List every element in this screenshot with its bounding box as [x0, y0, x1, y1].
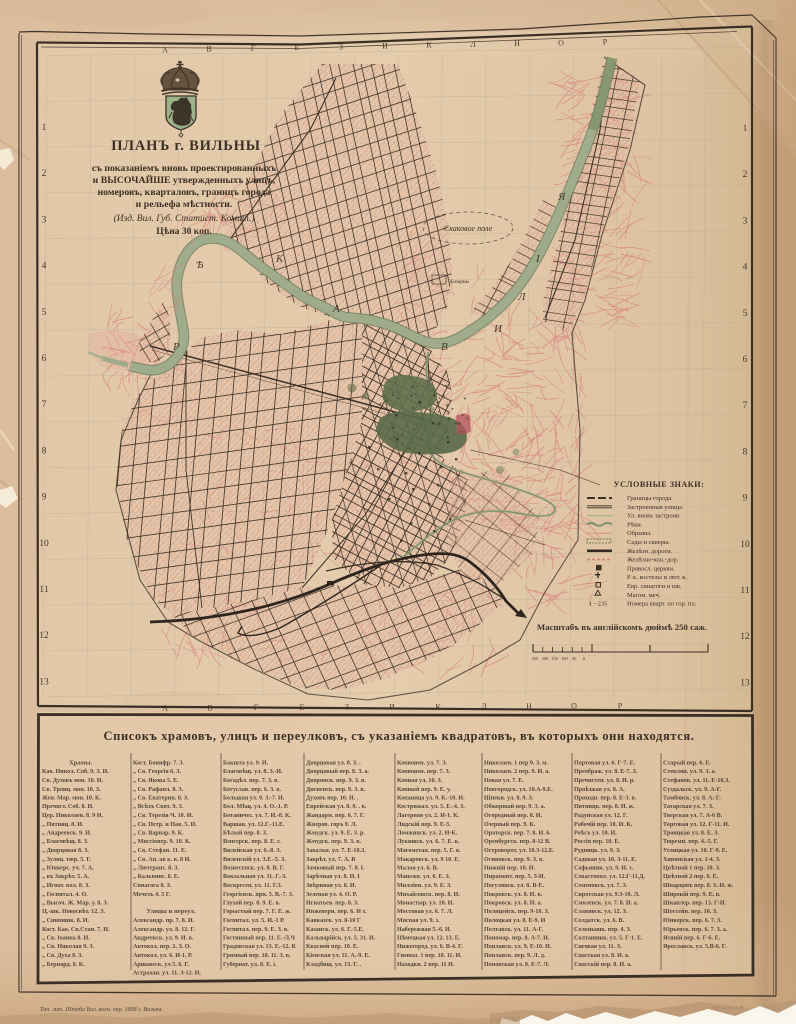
svg-text:Ул. вновь застроив.: Ул. вновь застроив.	[627, 513, 681, 520]
svg-text:Кост. Бонифр. 7. З.: Кост. Бонифр. 7. З.	[133, 760, 185, 767]
svg-text:Большая ул. 9. З.-7. И.: Большая ул. 9. З.-7. И.	[223, 796, 285, 802]
svg-text:10: 10	[740, 540, 750, 550]
svg-text:Поплавск. пер. 9. Л. д.: Поплавск. пер. 9. Л. д.	[484, 953, 546, 959]
svg-text:Благовѣщ. ул. 8. З.-И.: Благовѣщ. ул. 8. З.-И.	[223, 768, 283, 775]
svg-text:Суздальск. ул. 9. А-Г.: Суздальск. ул. 9. А-Г.	[663, 787, 722, 793]
svg-text:Садовая ул. 10. З-11. Е.: Садовая ул. 10. З-11. Е.	[574, 857, 637, 863]
svg-text:Преображ. ул. 8. Е-7. З.: Преображ. ул. 8. Е-7. З.	[574, 768, 638, 775]
svg-text:номеровъ, кварталовъ, границъ: номеровъ, кварталовъ, границъ города	[98, 187, 271, 198]
svg-text:1 - 235: 1 - 235	[589, 601, 607, 608]
svg-text:И: И	[389, 703, 395, 712]
svg-text:Пономар. пер. 8. А-7. И.: Пономар. пер. 8. А-7. И.	[484, 936, 550, 942]
svg-text:Сиговая ул. 11. З.: Сиговая ул. 11. З.	[574, 944, 622, 950]
svg-text:и ВЫСОЧАЙШЕ утвержденныхъ улиц: и ВЫСОЧАЙШЕ утвержденныхъ улицъ,	[93, 174, 276, 186]
svg-text:„ Св. Якова 5. Е.: „ Св. Якова 5. Е.	[133, 778, 179, 784]
svg-text:Стеклян. ул. 9. З. а.: Стеклян. ул. 9. З. а.	[663, 769, 717, 775]
svg-text:11: 11	[39, 585, 48, 595]
svg-text:Квасной пер. 10. Е.: Квасной пер. 10. Е.	[306, 943, 359, 950]
svg-text:Оренбургск. пер. 8-12 В.: Оренбургск. пер. 8-12 В.	[484, 838, 551, 845]
svg-text:„ Дворцовая 8. З.: „ Дворцовая 8. З.	[42, 848, 89, 854]
svg-text:Портовая ул. 6. Г-7. Е.: Портовая ул. 6. Г-7. Е.	[574, 761, 636, 767]
svg-text:Новая ул. 7. Е.: Новая ул. 7. Е.	[484, 778, 524, 784]
svg-text:ПЛАНЪ г. ВИЛЬНЫ: ПЛАНЪ г. ВИЛЬНЫ	[111, 138, 261, 154]
svg-text:Магом. меч.: Магом. меч.	[627, 592, 661, 599]
svg-text:съ показаніемъ вновь проектиро: съ показаніемъ вновь проектированныхъ	[92, 163, 277, 174]
svg-text:И: И	[382, 42, 388, 51]
svg-text:Славянск. ул. 12. З.: Славянск. ул. 12. З.	[574, 909, 628, 915]
svg-text:Тюремн. пер. 4.-5. Г.: Тюремн. пер. 4.-5. Г.	[663, 839, 719, 845]
svg-text:Ѣ: Ѣ	[196, 259, 204, 271]
svg-text:150: 150	[551, 656, 557, 661]
svg-text:Стефанов. ул. 11. Е-10.З.: Стефанов. ул. 11. Е-10.З.	[663, 777, 730, 784]
svg-text:Варшав. ул. 12.Г.-11.Е.: Варшав. ул. 12.Г.-11.Е.	[223, 822, 285, 828]
svg-text:Бол. Мѣщ. ул. 4. О.-1. Р.: Бол. Мѣщ. ул. 4. О.-1. Р.	[223, 803, 289, 810]
svg-text:Лагерная ул. 2. И-1. К.: Лагерная ул. 2. И-1. К.	[397, 813, 459, 819]
svg-text:Георгіевск. прп. 5. В.-7. З.: Георгіевск. прп. 5. В.-7. З.	[223, 892, 294, 898]
svg-text:Ораторск. пер. 7. 8. И. 6.: Ораторск. пер. 7. 8. И. 6.	[484, 831, 551, 837]
svg-text:Севастопол. ул. 12.Г-11.Д.: Севастопол. ул. 12.Г-11.Д.	[574, 874, 645, 880]
svg-text:Завальн. ул. 7. Е-10.З.: Завальн. ул. 7. Е-10.З.	[306, 848, 366, 854]
svg-text:Семеновск. ул. 7. З.: Семеновск. ул. 7. З.	[574, 883, 628, 889]
svg-text:Спасская ул. 8. И. а.: Спасская ул. 8. И. а.	[574, 953, 630, 959]
svg-text:1: 1	[743, 124, 748, 134]
svg-text:200: 200	[542, 656, 548, 661]
svg-text:Воскресен. ул. 11. Г.З.: Воскресен. ул. 11. Г.З.	[223, 883, 283, 889]
svg-text:Пятницк. пер. 8. И. ж.: Пятницк. пер. 8. И. ж.	[574, 804, 635, 810]
svg-text:Желѣзно-кон.-дор.: Желѣзно-кон.-дор.	[627, 557, 679, 564]
svg-text:Цѣна 30 коп.: Цѣна 30 коп.	[156, 226, 212, 237]
svg-text:И: И	[493, 323, 503, 335]
svg-text:Границы города.: Границы города.	[627, 495, 673, 502]
svg-text:Магометан. пер. 5. Г. в.: Магометан. пер. 5. Г. в.	[397, 848, 461, 854]
svg-text:Осиновск. пер. 9. З. в.: Осиновск. пер. 9. З. в.	[484, 857, 544, 863]
svg-text:Дворянск. пер. 9. З. в.: Дворянск. пер. 9. З. в.	[306, 778, 366, 784]
svg-text:„ Юнкерс. уч. 7. А.: „ Юнкерс. уч. 7. А.	[42, 866, 94, 872]
svg-text:Л: Л	[517, 291, 526, 303]
svg-text:„ Зулиц. тюр. 5. Г.: „ Зулиц. тюр. 5. Г.	[42, 857, 92, 863]
svg-text:Жмудск. ул. 9. Е. З. р.: Жмудск. ул. 9. Е. З. р.	[306, 831, 365, 837]
svg-text:Пречистен. ул. 8. И. р.: Пречистен. ул. 8. И. р.	[574, 778, 635, 784]
svg-text:Р: Р	[172, 341, 180, 353]
svg-text:Венгерск. пер. 8. Е. г.: Венгерск. пер. 8. Е. г.	[223, 839, 281, 845]
svg-text:Бакшта ул. 9. И.: Бакшта ул. 9. И.	[223, 761, 269, 767]
svg-text:„ Св. Николая 9. З.: „ Св. Николая 9. З.	[42, 944, 95, 950]
svg-text:9: 9	[42, 493, 47, 503]
svg-text:„ Андреевск. 9. И.: „ Андреевск. 9. И.	[42, 831, 92, 837]
svg-text:Смоленск. ул. 7. 8. И. а.: Смоленск. ул. 7. 8. И. а.	[574, 901, 639, 907]
svg-text:Тамбовск. ул. 8. А.-Г.: Тамбовск. ул. 8. А.-Г.	[663, 795, 721, 802]
svg-text:5: 5	[42, 308, 47, 318]
svg-text:Госпитал. пер. 9. Е. З. в.: Госпитал. пер. 9. Е. З. в.	[223, 927, 289, 933]
svg-text:Масштабъ въ англійскомъ дюймѣ: Масштабъ въ англійскомъ дюймѣ 250 саж.	[537, 622, 707, 632]
svg-text:Конная ул. 10. З.: Конная ул. 10. З.	[397, 778, 443, 784]
svg-text:Богадѣл. пер. 7. З. в.: Богадѣл. пер. 7. З. в.	[223, 777, 279, 784]
svg-text:9: 9	[743, 494, 748, 504]
svg-text:„ Госпитал. 4. О.: „ Госпитал. 4. О.	[42, 892, 88, 898]
svg-text:Аршавеск. ул 5. 6. Г.: Аршавеск. ул 5. 6. Г.	[133, 962, 190, 968]
svg-text:Обжорный пер. 9. З. а.: Обжорный пер. 9. З. а.	[484, 803, 546, 810]
svg-text:Дворцовая ул. 8. З. .: Дворцовая ул. 8. З. .	[306, 761, 361, 767]
svg-text:Р: Р	[603, 38, 608, 47]
svg-text:„ Св. Варвар. 9. К.: „ Св. Варвар. 9. К.	[133, 831, 184, 837]
svg-text:Андреевск. ул. 9. И. в.: Андреевск. ул. 9. И. в.	[133, 936, 194, 942]
svg-text:6: 6	[42, 354, 47, 364]
svg-text:Спасскій пер. 8. И. а.: Спасскій пер. 8. И. а.	[574, 961, 632, 968]
svg-text:„ Св. Іоанна 8. И.: „ Св. Іоанна 8. И.	[42, 936, 90, 942]
svg-text:„ Св. Екатерин. 8. З.: „ Св. Екатерин. 8. З.	[133, 796, 189, 802]
svg-text:Монастыр. ул. 10. И.: Монастыр. ул. 10. И.	[397, 901, 454, 907]
svg-text:„ Игнат. кол. 8. З.: „ Игнат. кол. 8. З.	[42, 883, 90, 889]
svg-text:Татарская ул. 7. З.: Татарская ул. 7. З.	[663, 804, 714, 810]
svg-text:Госпитал. ул. 5. И.-1 Р.: Госпитал. ул. 5. И.-1 Р.	[223, 918, 285, 924]
svg-text:Широкій пер. 9. Е. в.: Широкій пер. 9. Е. в.	[663, 891, 721, 898]
svg-text:Номера кварт. по гор. пл.: Номера кварт. по гор. пл.	[627, 601, 697, 608]
svg-text:Я: Я	[557, 191, 566, 203]
svg-text:1: 1	[42, 123, 47, 133]
svg-text:Александр. пр. 7. 8. И.: Александр. пр. 7. 8. И.	[133, 918, 195, 924]
svg-text:Кострижал. ул. 5. Е.-4. З.: Кострижал. ул. 5. Е.-4. З.	[397, 804, 465, 810]
svg-text:Богуслав. пер. 6. З. в.: Богуслав. пер. 6. З. в.	[223, 787, 282, 793]
svg-text:Списокъ храмовъ, улицъ и переу: Списокъ храмовъ, улицъ и переулковъ, съ …	[104, 729, 695, 743]
svg-text:„ Бернард. 8. К.: „ Бернард. 8. К.	[42, 962, 85, 968]
svg-text:Улицы и переул.: Улицы и переул.	[146, 908, 196, 915]
svg-text:100: 100	[561, 656, 567, 661]
svg-text:Жверов. горъ 9. Л.: Жверов. горъ 9. Л.	[306, 822, 357, 828]
svg-text:Скаковое поле: Скаковое поле	[444, 224, 493, 233]
svg-text:Кладбищ. ул. 13. Г. .: Кладбищ. ул. 13. Г. .	[306, 961, 361, 968]
svg-text:Шпеки. ул. 8. 9. З.: Шпеки. ул. 8. 9. З.	[484, 796, 534, 802]
svg-text:Конный пер. 9. Е. у.: Конный пер. 9. Е. у.	[397, 786, 451, 793]
svg-text:„ Св. Духа 8. З.: „ Св. Духа 8. З.	[42, 953, 83, 959]
svg-text:Цвѣтной 2 пер. 6. Е.: Цвѣтной 2 пер. 6. Е.	[663, 873, 719, 880]
svg-text:Дворцовый пер. 8. З. а.: Дворцовый пер. 8. З. а.	[306, 768, 369, 775]
svg-text:Покровск. ул. 8. И. в.: Покровск. ул. 8. И. в.	[484, 892, 543, 898]
svg-text:12: 12	[39, 631, 49, 641]
svg-text:Ясиній пер. 6. Г-6. Е.: Ясиній пер. 6. Г-6. Е.	[663, 935, 721, 942]
svg-text:„ Св. Рафаил. 8. З.: „ Св. Рафаил. 8. З.	[133, 786, 184, 793]
svg-text:Астрахан. ул. 11. З-12. И.: Астрахан. ул. 11. З-12. И.	[133, 971, 201, 977]
svg-text:Полицейск. пер. 9-10. З.: Полицейск. пер. 9-10. З.	[484, 908, 550, 915]
svg-text:„ Снипишк. 8. И.: „ Снипишк. 8. И.	[42, 918, 90, 924]
svg-text:2: 2	[42, 169, 47, 179]
svg-text:Казармы: Казармы	[449, 280, 470, 285]
svg-text:Л: Л	[470, 40, 476, 49]
svg-text:Кавказск. ул. 8-10 Г: Кавказск. ул. 8-10 Г	[306, 918, 361, 924]
svg-text:Николаев. 2 пер. 9. И. а.: Николаев. 2 пер. 9. И. а.	[484, 769, 550, 775]
svg-text:8: 8	[743, 447, 748, 457]
svg-text:Ярославск. ул. 5.В-6. Г.: Ярославск. ул. 5.В-6. Г.	[663, 944, 727, 950]
svg-text:Мясная ул. 9. з.: Мясная ул. 9. з.	[397, 918, 440, 924]
svg-text:Солдатск. ул. 6. В.: Солдатск. ул. 6. В.	[574, 918, 625, 924]
svg-text:8: 8	[42, 446, 47, 456]
svg-text:В: В	[206, 45, 211, 54]
svg-text:Бѣлый пер. 8. З.: Бѣлый пер. 8. З.	[223, 830, 268, 837]
svg-text:Солтанишк. ул. 5. Г-1. Е.: Солтанишк. ул. 5. Г-1. Е.	[574, 936, 643, 942]
svg-text:Евр. синагоги и шк.: Евр. синагоги и шк.	[627, 583, 682, 590]
svg-text:Александр. ул. 8. 12. Г.: Александр. ул. 8. 12. Г.	[133, 927, 196, 933]
svg-text:Островорот. ул. 10.З-12.Е.: Островорот. ул. 10.З-12.Е.	[484, 848, 555, 854]
svg-text:Гимназ. 1 пер. 10. 11. И.: Гимназ. 1 пер. 10. 11. И.	[397, 953, 462, 959]
svg-text:Юрьевск. пер. 6. 7. З. а.: Юрьевск. пер. 6. 7. З. а.	[663, 927, 728, 933]
svg-text:Михайловск. пер. 8. И.: Михайловск. пер. 8. И.	[397, 891, 460, 898]
svg-text:А: А	[162, 46, 168, 55]
svg-text:Антокол. ул. 6. И-1. Р.: Антокол. ул. 6. И-1. Р.	[133, 953, 193, 959]
svg-text:Рабочій пер. 10. И. К.: Рабочій пер. 10. И. К.	[574, 821, 633, 828]
svg-text:Цвѣтной 1 пер. 10. З.: Цвѣтной 1 пер. 10. З.	[663, 865, 721, 872]
svg-text:Тверская ул. 7. А-6 В.: Тверская ул. 7. А-6 В.	[663, 813, 723, 819]
svg-text:Пирамонт. пер. 5. З-И.: Пирамонт. пер. 5. З-И.	[484, 874, 546, 880]
svg-text:Сиротская ул. 9.З-10. Л.: Сиротская ул. 9.З-10. Л.	[574, 892, 640, 898]
svg-text:УСЛОВНЫЕ ЗНАКИ:: УСЛОВНЫЕ ЗНАКИ:	[614, 480, 705, 489]
svg-text:Шкаплер. пер. 13. Г-И.: Шкаплер. пер. 13. Г-И.	[663, 901, 727, 907]
svg-text:13: 13	[39, 677, 49, 687]
svg-text:Юнкерск. пер. 6. 7. З.: Юнкерск. пер. 6. 7. З.	[663, 918, 722, 924]
svg-text:Храмы.: Храмы.	[69, 760, 92, 767]
svg-text:Находки. 2 пер. 11 И.: Находки. 2 пер. 11 И.	[397, 962, 455, 968]
svg-text:Пречист. Соб. 8. И.: Пречист. Соб. 8. И.	[42, 803, 94, 810]
svg-text:Озерный пер. 9. К.: Озерный пер. 9. К.	[484, 821, 536, 828]
svg-text:Кіевская ул. 11. А.-9. Е.: Кіевская ул. 11. А.-9. Е.	[306, 953, 370, 959]
svg-text:Старый пер. 6. Е.: Старый пер. 6. Е.	[663, 760, 711, 767]
svg-text:„ Кальвинс. 8. Е.: „ Кальвинс. 8. Е.	[133, 874, 180, 880]
svg-text:Кальварійск. ул. 5. З1. И.: Кальварійск. ул. 5. З1. И.	[306, 935, 376, 942]
svg-text:К: К	[426, 41, 432, 50]
svg-text:12: 12	[740, 632, 750, 642]
svg-text:4: 4	[42, 262, 47, 272]
svg-text:Замковый пер. 7. 8. І.: Замковый пер. 7. 8. І.	[306, 865, 365, 872]
svg-text:В: В	[441, 341, 448, 353]
svg-text:3: 3	[42, 215, 47, 225]
svg-text:Копаница ул. 9. К.-10. И.: Копаница ул. 9. К.-10. И.	[397, 796, 465, 802]
svg-text:Градовская ул. 13. Е.-12. К: Градовская ул. 13. Е.-12. К	[223, 944, 297, 950]
svg-text:О: О	[558, 38, 564, 47]
svg-text:Застроенныя улицы.: Застроенныя улицы.	[627, 504, 684, 511]
svg-text:Правосл. церкви.: Правосл. церкви.	[627, 565, 675, 572]
svg-text:„ Св. Георгія 6. З.: „ Св. Георгія 6. З.	[133, 769, 181, 775]
svg-text:Полтавск. ул. 11. А-Г.: Полтавск. ул. 11. А-Г.	[484, 927, 544, 933]
svg-text:Антокол. пер. 2. З. О.: Антокол. пер. 2. З. О.	[133, 944, 191, 950]
svg-text:Лидскій пер. 9. Е-З.: Лидскій пер. 9. Е-З.	[397, 821, 451, 828]
svg-text:Углицкая ул. 10. Г-9. Е.: Углицкая ул. 10. Г-9. Е.	[663, 848, 728, 854]
svg-text:Св. Троиц. мон. 10. З.: Св. Троиц. мон. 10. З.	[42, 787, 101, 793]
svg-text:Р. к. костелы и лют. к.: Р. к. костелы и лют. к.	[627, 574, 687, 581]
svg-text:Жмудск. пер. 9. З. в.: Жмудск. пер. 9. З. в.	[306, 839, 361, 845]
svg-text:„ въ Закрѣт. 5. А.: „ въ Закрѣт. 5. А.	[42, 873, 90, 880]
svg-text:7: 7	[42, 400, 47, 410]
svg-text:Ц.-шк. Новосвѣт. 12. З.: Ц.-шк. Новосвѣт. 12. З.	[42, 908, 106, 915]
svg-text:Торговая ул. 12. Г-11. И.: Торговая ул. 12. Г-11. И.	[663, 822, 730, 828]
svg-text:Желѣзн. дороги.: Желѣзн. дороги.	[627, 548, 673, 555]
svg-text:Рудницк. ул. 9. З.: Рудницк. ул. 9. З.	[574, 848, 621, 854]
svg-text:Поповская ул. 8. Е-7. Л.: Поповская ул. 8. Е-7. Л.	[484, 962, 550, 968]
svg-text:Нижній пер. 10. И.: Нижній пер. 10. И.	[484, 865, 535, 872]
svg-text:Конюшен. пер. 7. З.: Конюшен. пер. 7. З.	[397, 769, 451, 775]
svg-text:Малая ул. 6. В.: Малая ул. 6. В.	[397, 866, 439, 872]
svg-text:К: К	[275, 253, 284, 265]
svg-text:„ Св. Ап. ав к. в. 8 И.: „ Св. Ап. ав к. в. 8 И.	[133, 857, 191, 863]
svg-text:„ Св. Петр. и Пав. 5. И.: „ Св. Петр. и Пав. 5. И.	[133, 822, 197, 828]
svg-text:Кост. Каѳ. Св.Стан. 7. И.: Кост. Каѳ. Св.Стан. 7. И.	[42, 927, 110, 933]
svg-text:Зарѣчная ул. 8. И. І: Зарѣчная ул. 8. И. І	[306, 873, 360, 880]
svg-text:Обрывы.: Обрывы.	[627, 530, 652, 537]
svg-text:Огородный пер. 8. И.: Огородный пер. 8. И.	[484, 812, 543, 819]
svg-text:Ботаничес. ул. 7. И.-8. К.: Ботаничес. ул. 7. И.-8. К.	[223, 813, 291, 819]
svg-text:13: 13	[740, 678, 750, 688]
svg-text:Шоссейн. пер. 10. З.: Шоссейн. пер. 10. З.	[663, 908, 718, 915]
svg-text:Новгородск. ул. 10.А-9.Е.: Новгородск. ул. 10.А-9.Е.	[484, 787, 553, 793]
svg-text:Дисненск. пер. 9. З. в.: Дисненск. пер. 9. З. в.	[306, 787, 366, 793]
svg-text:Синагога 8. З.: Синагога 8. З.	[133, 883, 172, 889]
svg-text:Глухой пер. 8. 9. Е. в.: Глухой пер. 8. 9. Е. в.	[223, 900, 281, 907]
svg-text:Виленскій ул. З.Е.-5. З.: Виленскій ул. З.Е.-5. З.	[223, 856, 286, 863]
svg-text:10: 10	[39, 539, 49, 549]
svg-text:3: 3	[743, 216, 748, 226]
svg-text:Вокзальная ул. 11. Г.-З.: Вокзальная ул. 11. Г.-З.	[223, 874, 287, 880]
svg-text:Вилейская ул. 6.-8. З.: Вилейская ул. 6.-8. З.	[223, 847, 281, 854]
svg-text:6: 6	[743, 355, 748, 365]
svg-text:250: 250	[532, 656, 538, 661]
svg-text:„ Миссіонер. 9. 10. К.: „ Миссіонер. 9. 10. К.	[133, 839, 191, 845]
svg-text:Погулянск. ул. 8. В-Е.: Погулянск. ул. 8. В-Е.	[484, 883, 545, 889]
svg-text:Св. Духовъ мон. 10. И.: Св. Духовъ мон. 10. И.	[42, 778, 103, 784]
svg-text:„ Высоч. Ж. Мар. у. 8. З.: „ Высоч. Ж. Мар. у. 8. З.	[42, 901, 109, 907]
svg-text:Вознесенск. ул. 8. В. Г.: Вознесенск. ул. 8. В. Г.	[223, 866, 285, 872]
svg-text:„ Пятниц. 8. И.: „ Пятниц. 8. И.	[42, 822, 84, 828]
svg-text:Солонышк. пер. 4. З.: Солонышк. пер. 4. З.	[574, 927, 632, 933]
svg-text:Николаев. 1 пер 9. З. м.: Николаев. 1 пер 9. З. м.	[484, 761, 548, 767]
svg-text:Игнатьев. пер. 8. З.: Игнатьев. пер. 8. З.	[306, 901, 359, 907]
svg-text:Проходн. пер. 8. Е-З. в.: Проходн. пер. 8. Е-З. в.	[574, 796, 637, 802]
svg-text:Духовъ пер. 10. И. .: Духовъ пер. 10. И. .	[306, 796, 359, 802]
svg-text:Казанск. ул. 6. Г.-5.Е.: Казанск. ул. 6. Г.-5.Е.	[306, 927, 364, 933]
svg-text:и рельефа мѣстности.: и рельефа мѣстности.	[136, 199, 233, 210]
svg-text:4: 4	[743, 263, 748, 273]
svg-text:Конюшен. ул. 7. З.: Конюшен. ул. 7. З.	[397, 761, 447, 767]
svg-text:„ Св. Терезіи Ч. 10. И.: „ Св. Терезіи Ч. 10. И.	[133, 813, 194, 819]
svg-text:Россія пер. 10. Е.: Россія пер. 10. Е.	[574, 839, 620, 845]
svg-text:Ломжинск. ул. 2. И-К.: Ломжинск. ул. 2. И-К.	[397, 831, 458, 837]
svg-text:2: 2	[743, 170, 748, 180]
svg-text:Троицкая ул. 8. Е. З.: Троицкая ул. 8. Е. З.	[663, 831, 719, 837]
svg-text:(Изд. Вил. Губ. Статист. Комит: (Изд. Вил. Губ. Статист. Комит.)	[114, 213, 255, 224]
svg-text:„ Всѣхъ Свят. 9. З.: „ Всѣхъ Свят. 9. З.	[133, 803, 184, 810]
svg-text:0: 0	[583, 656, 585, 661]
svg-text:„ Благовѣщ. 8. З.: „ Благовѣщ. 8. З.	[42, 838, 89, 845]
svg-text:Манежн. ул. 6. Е. З.: Манежн. ул. 6. Е. З.	[397, 874, 451, 880]
svg-text:Макаровск. ул. 9 10. Е.: Макаровск. ул. 9 10. Е.	[397, 857, 460, 863]
svg-text:Инженерн. пер. 6. И т.: Инженерн. пер. 6. И т.	[306, 909, 367, 915]
svg-text:Поплавск. ул. 9. Е-10. И.: Поплавск. ул. 9. Е-10. И.	[484, 944, 552, 950]
svg-text:Тип. лит. Штаба Вил. воен. окр: Тип. лит. Штаба Вил. воен. окр. 1898 г. …	[40, 1006, 163, 1013]
svg-text:Грязный пер. 10. 11. З. в.: Грязный пер. 10. 11. З. в.	[223, 952, 291, 959]
svg-text:Хивинская ул. 1-4. З.: Хивинская ул. 1-4. З.	[663, 857, 721, 863]
svg-text:К: К	[435, 702, 441, 711]
svg-text:11: 11	[740, 586, 749, 596]
svg-text:Звѣриная ул. 8. И.: Звѣриная ул. 8. И.	[306, 882, 357, 889]
svg-text:Радунская ул. 12. Г.: Радунская ул. 12. Г.	[574, 813, 628, 819]
svg-text:Цер. Николаев. 8. 9 И.: Цер. Николаев. 8. 9 И.	[42, 813, 103, 819]
svg-text:Губернат. ул. 8. Е. і.: Губернат. ул. 8. Е. і.	[223, 961, 277, 968]
svg-text:Сафьяник. ул. 9. И. з.: Сафьяник. ул. 9. И. з.	[574, 865, 633, 872]
svg-text:Жен. Мар. мон. 10. К.: Жен. Мар. мон. 10. К.	[42, 796, 101, 802]
svg-text:Жандарм. пер. 6. 7. Г.: Жандарм. пер. 6. 7. Г.	[306, 813, 365, 819]
svg-text:Покровск. ул. 8. И. а.: Покровск. ул. 8. И. а.	[484, 901, 542, 907]
svg-text:5: 5	[743, 309, 748, 319]
svg-text:Полоцкая ул. 8. Е-9. И: Полоцкая ул. 8. Е-9. И	[484, 918, 546, 924]
svg-text:Нижегород. ул. 6. В-4. Г.: Нижегород. ул. 6. В-4. Г.	[397, 944, 463, 950]
svg-text:Роѣсъ ул. 10. И.: Роѣсъ ул. 10. И.	[574, 830, 617, 837]
svg-text:Сады и скверы.: Сады и скверы.	[627, 539, 670, 546]
svg-text:„ Лютеранс. 8. З.: „ Лютеранс. 8. З.	[133, 866, 179, 872]
svg-text:А: А	[332, 303, 340, 315]
svg-text:„ Св. Стефан. 11. Е.: „ Св. Стефан. 11. Е.	[133, 847, 187, 854]
svg-text:50: 50	[572, 656, 576, 661]
svg-text:Зеленая ул. 4. О. Р.: Зеленая ул. 4. О. Р.	[306, 892, 358, 898]
svg-text:Еврейская ул. 8. 9. . в.: Еврейская ул. 8. 9. . в.	[306, 803, 367, 810]
svg-text:Проѣзжая ул. 8. А.: Проѣзжая ул. 8. А.	[574, 786, 625, 793]
svg-text:Мостовая ул. 6. 7. Л.: Мостовая ул. 6. 7. Л.	[397, 909, 453, 915]
svg-text:Шварцовъ пер. 8. З.-И. ж.: Шварцовъ пер. 8. З.-И. ж.	[663, 883, 734, 889]
svg-text:7: 7	[743, 401, 748, 411]
svg-text:Милліон. ул. 9. Е. З.: Милліон. ул. 9. Е. З.	[397, 883, 452, 889]
svg-text:Мечеть 4. 5 Г.: Мечеть 4. 5 Г.	[133, 892, 171, 898]
svg-text:Набережная 5.-6. И.: Набережная 5.-6. И.	[397, 926, 452, 933]
svg-text:Нѣмецкая ул. 12. 13. Е.: Нѣмецкая ул. 12. 13. Е.	[397, 935, 461, 942]
svg-text:Каѳ. Никол. Соб. 9. З. И.: Каѳ. Никол. Соб. 9. З. И.	[42, 768, 109, 775]
svg-text:Рѣки.: Рѣки.	[627, 521, 643, 528]
svg-text:Гостинный пер. 11. Е.-Л.Ч: Гостинный пер. 11. Е.-Л.Ч	[223, 935, 296, 942]
svg-text:Закрѣт. ул. 7. А. В: Закрѣт. ул. 7. А. В	[306, 856, 355, 863]
svg-text:Горыстый пер. 7. Г. Е. ж.: Горыстый пер. 7. Г. Е. ж.	[223, 908, 292, 915]
svg-text:Лукишск. ул. 6. 7. Е. к.: Лукишск. ул. 6. 7. Е. к.	[397, 839, 460, 845]
